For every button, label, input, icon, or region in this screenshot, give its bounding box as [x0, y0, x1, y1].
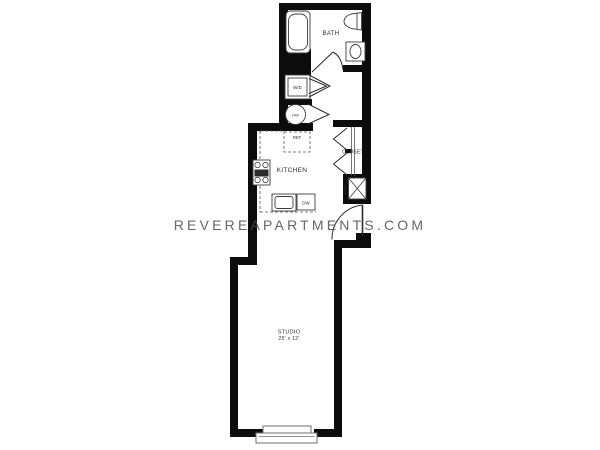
bath-label: BATH: [323, 31, 340, 37]
floorplan-image: BATH KITCHEN CLOSET STUDIO 25' x 12' W/D…: [0, 0, 600, 450]
refrigerator-label: REF: [293, 135, 302, 140]
hw-bifold-door: [308, 104, 329, 124]
wall-closet-top: [333, 120, 371, 127]
wall-bath-top: [279, 3, 371, 10]
closet-bifold-lower: [334, 153, 348, 175]
bath-sink-basin: [350, 45, 361, 59]
wall-studio-left: [230, 257, 238, 437]
bath-door-leaf: [312, 52, 333, 72]
range-burner: [263, 177, 268, 182]
bath-door-arc: [333, 52, 343, 70]
wall-entry-hinge-stub: [356, 233, 371, 242]
range-burner: [255, 162, 260, 167]
wall-kitchen-left: [248, 123, 257, 265]
toilet-icon: [344, 13, 362, 31]
wall-right-upper: [362, 3, 371, 203]
wd-bifold-door-inner: [309, 79, 327, 94]
range-burner: [263, 162, 268, 167]
range-burner: [255, 177, 260, 182]
kitchen-sink-basin: [275, 197, 293, 209]
studio-window-upper: [263, 426, 311, 434]
studio-dimensions: 25' x 12': [278, 336, 299, 342]
watermark-text: REVEREAPARTMENTS.COM: [0, 217, 600, 233]
kitchen-label: KITCHEN: [277, 167, 308, 174]
hvac-unit: [349, 178, 367, 199]
hvac-label: HVAC: [344, 184, 348, 195]
closet-label: CLOSET: [342, 150, 364, 156]
studio-window-lower: [256, 433, 317, 443]
range: [253, 160, 270, 185]
bathtub-inner: [289, 14, 308, 50]
wall-bath-bottom-right: [343, 65, 371, 72]
range-center-band: [255, 170, 269, 177]
washer-dryer-label: W/D: [293, 85, 302, 90]
water-heater-label: HW: [292, 113, 299, 118]
dishwasher-label: DW: [302, 201, 310, 206]
studio-label: STUDIO: [278, 330, 301, 336]
wall-kitchen-top: [248, 123, 313, 131]
closet-bifold-upper: [334, 128, 348, 150]
wall-studio-right: [334, 243, 342, 437]
